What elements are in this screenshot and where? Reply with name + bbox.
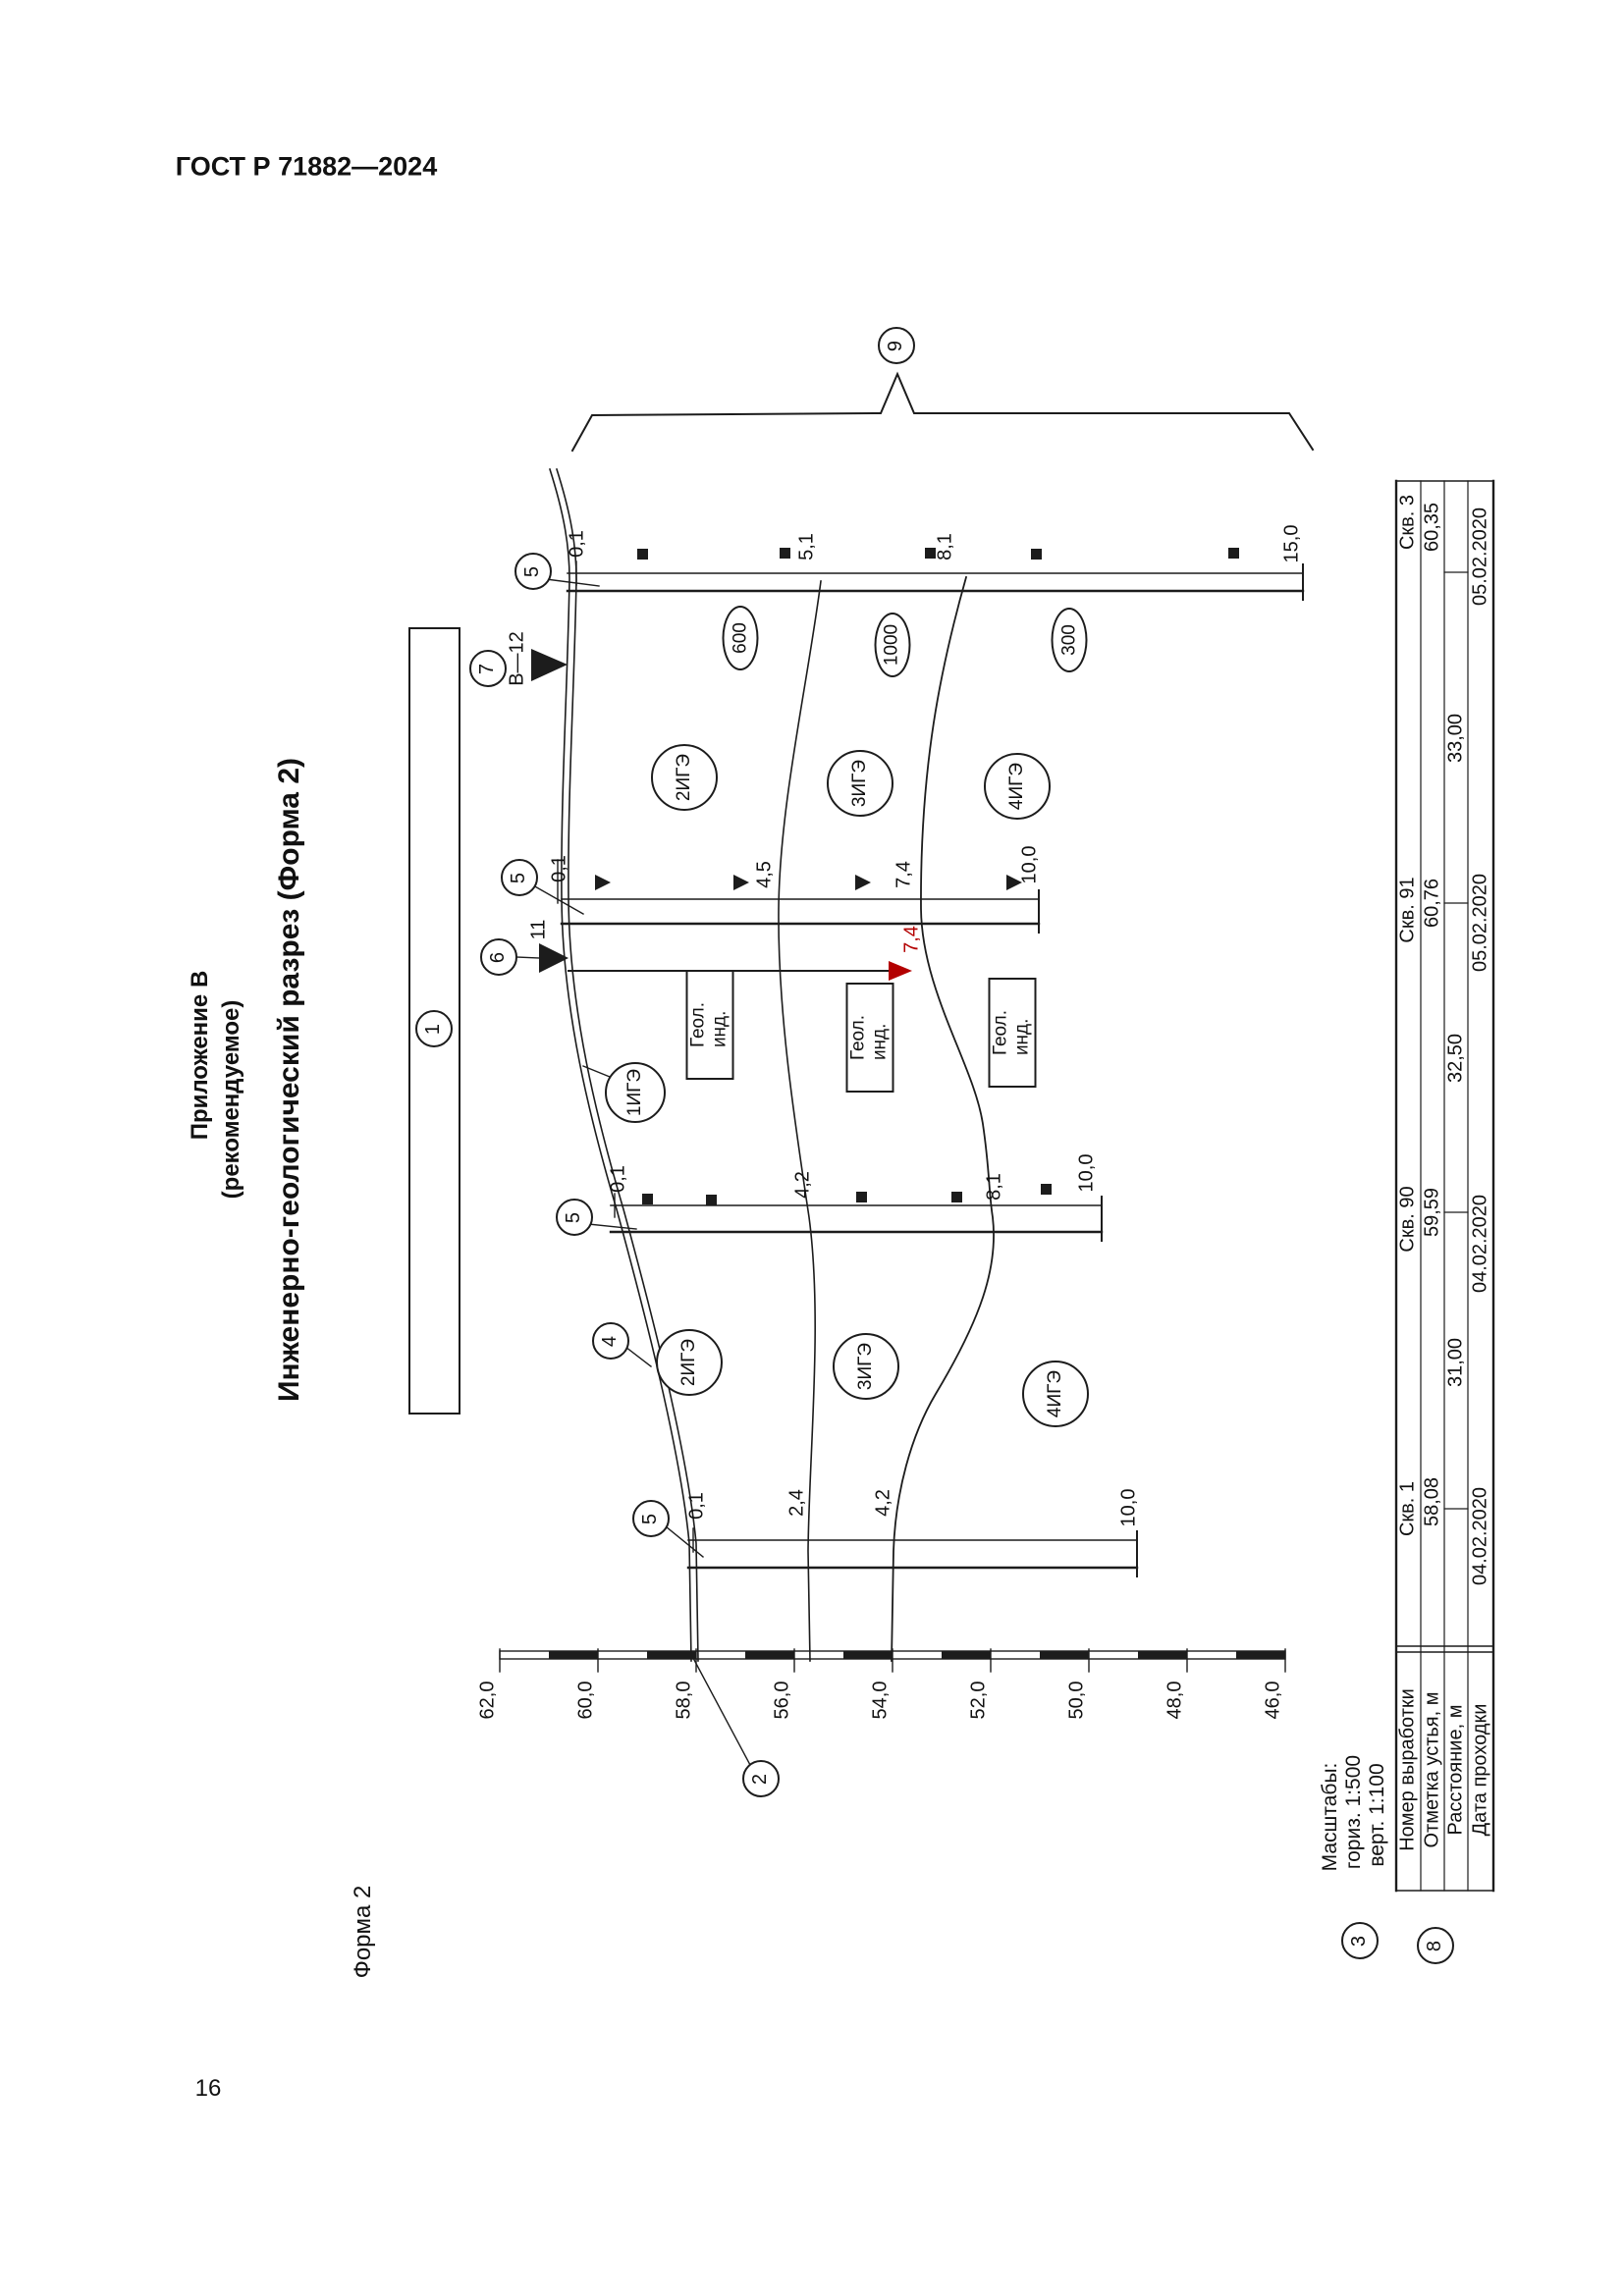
ruler-label: 52,0 xyxy=(968,1682,991,1720)
callout-8: 8 xyxy=(1417,1927,1454,1964)
depth-label: 0,1 xyxy=(549,855,571,882)
document-page: ГОСТ Р 71882—2024 16 Форма 2 Приложение … xyxy=(0,0,1624,2296)
callout-5-label: 5 xyxy=(522,565,545,576)
callout-9: 9 xyxy=(878,327,915,364)
callout-4-label: 4 xyxy=(600,1335,623,1346)
depth-label: 8,1 xyxy=(984,1173,1006,1201)
pressure-value: 1000 xyxy=(882,624,903,666)
callout-3-label: 3 xyxy=(1349,1935,1372,1946)
depth-label: 10,0 xyxy=(1076,1154,1099,1193)
brace-line xyxy=(572,374,1313,451)
table-cell-name-skv3: Скв. 3 xyxy=(1397,495,1420,550)
ige-circle: 3ИГЭ xyxy=(833,1333,899,1400)
pressure-ellipse: 600 xyxy=(723,606,759,670)
callout-7: 7 xyxy=(469,650,507,687)
depth-label: 4,2 xyxy=(873,1489,895,1517)
table-cell-name-skv91: Скв. 91 xyxy=(1397,877,1420,942)
depth-label: 4,2 xyxy=(792,1171,815,1199)
ige-label: 3ИГЭ xyxy=(855,1343,877,1390)
depth-label: 5,1 xyxy=(796,533,819,561)
ruler-label: 46,0 xyxy=(1263,1682,1285,1720)
callout-5: 5 xyxy=(501,859,538,896)
pressure-value: 300 xyxy=(1058,624,1080,656)
depth-label: 0,1 xyxy=(608,1165,630,1193)
callout-7-label: 7 xyxy=(477,663,500,673)
callout-5-label: 5 xyxy=(640,1513,663,1523)
table-cell-distance-2: 32,50 xyxy=(1445,1034,1468,1083)
sample-marks-skv91 xyxy=(595,875,1022,890)
geol-index-box: Геол. инд. xyxy=(846,983,894,1093)
pressure-ellipse: 300 xyxy=(1052,608,1088,672)
table-cell-date-skv91: 05.02.2020 xyxy=(1470,874,1492,972)
geol-index-box: Геол. инд. xyxy=(989,978,1037,1088)
ige-label: 3ИГЭ xyxy=(849,760,871,807)
borehole-skv91 xyxy=(558,860,1039,933)
geol-index-label: Геол. инд. xyxy=(848,1015,892,1060)
table-cell-date-skv3: 05.02.2020 xyxy=(1470,507,1492,606)
callout-2-label: 2 xyxy=(750,1773,773,1784)
section-ref-flag-icon xyxy=(531,649,568,681)
ige-label: 4ИГЭ xyxy=(1045,1370,1066,1417)
geol-index-box: Геол. инд. xyxy=(686,970,734,1080)
depth-label: 10,0 xyxy=(1019,846,1042,884)
ige-circle: 2ИГЭ xyxy=(651,744,718,811)
standard-number: ГОСТ Р 71882—2024 xyxy=(176,152,437,183)
callout-9-label: 9 xyxy=(886,340,908,350)
depth-label: 0,1 xyxy=(567,530,589,558)
borehole-skv1 xyxy=(688,1528,1137,1576)
page-number: 16 xyxy=(195,2075,222,2103)
callout-5: 5 xyxy=(556,1199,593,1236)
borehole-skv3 xyxy=(568,561,1303,600)
ruler-label: 58,0 xyxy=(674,1682,696,1720)
table-cell-distance-3: 31,00 xyxy=(1445,1338,1468,1387)
callout-5: 5 xyxy=(632,1500,670,1537)
leader-lines xyxy=(515,579,750,1765)
scale-note-horizontal: гориз. 1:500 xyxy=(1342,1755,1366,1869)
table-cell-distance-1: 33,00 xyxy=(1445,714,1468,763)
callout-5-label: 5 xyxy=(509,872,531,882)
pressure-value: 600 xyxy=(730,622,751,654)
depth-label: 0,1 xyxy=(686,1492,709,1520)
ige-circle: 4ИГЭ xyxy=(1022,1361,1089,1427)
table-cell-elev-skv91: 60,76 xyxy=(1422,879,1444,928)
table-header-number: Номер выработки xyxy=(1397,1688,1420,1851)
ige-circle: 1ИГЭ xyxy=(605,1062,666,1123)
callout-1-label: 1 xyxy=(423,1023,446,1034)
depth-label: 7,4 xyxy=(893,861,916,888)
ige-label: 2ИГЭ xyxy=(678,1339,700,1386)
table-cell-elev-skv90: 59,59 xyxy=(1422,1188,1444,1237)
appendix-title: Приложение В xyxy=(187,971,214,1141)
callout-4: 4 xyxy=(592,1322,629,1360)
table-cell-name-skv1: Скв. 1 xyxy=(1397,1481,1420,1536)
scale-note-vertical: верт. 1:100 xyxy=(1366,1763,1389,1866)
ige-circle: 2ИГЭ xyxy=(656,1329,723,1396)
geo-boundary-2 xyxy=(892,577,994,1661)
callout-2: 2 xyxy=(742,1760,780,1797)
callout-6-label: 6 xyxy=(488,951,511,962)
table-cell-name-skv90: Скв. 90 xyxy=(1397,1186,1420,1252)
water-level-red-arrow-icon xyxy=(889,961,912,981)
callout-6: 6 xyxy=(480,938,517,976)
table-header-date: Дата проходки xyxy=(1470,1704,1492,1837)
ruler-black-segments xyxy=(549,1651,1285,1659)
geol-index-label: Геол. инд. xyxy=(688,1002,731,1047)
depth-label: 2,4 xyxy=(786,1489,809,1517)
scale-note-title: Масштабы: xyxy=(1319,1763,1342,1872)
callout-3: 3 xyxy=(1341,1922,1379,1959)
ige-label: 1ИГЭ xyxy=(624,1069,646,1116)
form-note: Форма 2 xyxy=(350,1886,377,1979)
table-header-distance: Расстояние, м xyxy=(1445,1705,1468,1836)
callout-8-label: 8 xyxy=(1425,1940,1447,1950)
geol-index-label: Геол. инд. xyxy=(991,1010,1034,1055)
ruler-label: 50,0 xyxy=(1066,1682,1089,1720)
water-depth-red-label: 7,4 xyxy=(901,926,924,953)
depth-label: 10,0 xyxy=(1118,1489,1141,1527)
table-cell-elev-skv3: 60,35 xyxy=(1422,503,1444,552)
ige-circle: 4ИГЭ xyxy=(984,753,1051,820)
depth-label: 8,1 xyxy=(935,533,957,561)
ruler-label: 48,0 xyxy=(1164,1682,1187,1720)
ruler-label: 62,0 xyxy=(477,1682,500,1720)
callout-5-label: 5 xyxy=(564,1211,586,1222)
table-header-elevation: Отметка устья, м xyxy=(1422,1691,1444,1847)
callout-5: 5 xyxy=(514,553,552,590)
water-depth-label: 11 xyxy=(528,920,551,940)
table-cell-elev-skv1: 58,08 xyxy=(1422,1477,1444,1526)
depth-label: 4,5 xyxy=(754,861,777,888)
appendix-note: (рекомендуемое) xyxy=(218,1000,245,1200)
callout-1: 1 xyxy=(415,1010,453,1047)
ruler-label: 54,0 xyxy=(870,1682,893,1720)
main-title: Инженерно-геологический разрез (Форма 2) xyxy=(273,758,306,1402)
table-cell-date-skv1: 04.02.2020 xyxy=(1470,1487,1492,1585)
table-cell-date-skv90: 04.02.2020 xyxy=(1470,1195,1492,1293)
ige-label: 4ИГЭ xyxy=(1006,763,1028,810)
ruler-label: 56,0 xyxy=(772,1682,794,1720)
ige-circle: 3ИГЭ xyxy=(827,750,893,817)
section-ref-label: В—12 xyxy=(507,631,529,686)
ruler-label: 60,0 xyxy=(575,1682,598,1720)
depth-label: 15,0 xyxy=(1281,525,1304,563)
pressure-ellipse: 1000 xyxy=(875,613,911,677)
ige-label: 2ИГЭ xyxy=(674,754,695,801)
